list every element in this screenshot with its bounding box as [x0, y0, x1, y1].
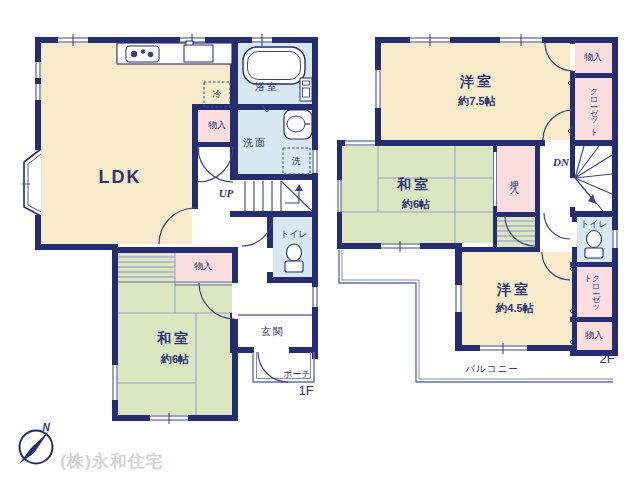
watermark: (株)永和住宅 [60, 453, 163, 470]
label-ldk: LDK [99, 168, 142, 186]
label-porch: ポーチ [283, 370, 310, 379]
bathtub-icon [243, 47, 305, 84]
room-washitsu-2f [342, 146, 493, 243]
label-storage-hall-1f: 物入 [208, 121, 226, 130]
room-fills [41, 43, 612, 415]
hall-2f-door-arc [544, 213, 570, 239]
floorplan-drawing [0, 0, 640, 480]
stove-icon [126, 46, 159, 62]
toilet-icon-2f [585, 231, 603, 259]
label-western-4-5-size: 約4.5帖 [496, 303, 533, 314]
label-toilet-2f: トイレ [580, 220, 608, 229]
toilet-icon-1f [285, 244, 303, 272]
bath-panel-icon [300, 78, 312, 101]
compass-icon [19, 431, 53, 465]
label-bath: 浴室 [255, 82, 279, 92]
room-western-4-5 [462, 252, 572, 345]
label-balcony: バルコニー [465, 364, 518, 374]
label-closet-top-2f: クローゼット [589, 82, 597, 134]
label-washitsu-2f-size: 約6帖 [402, 199, 430, 210]
label-western-7-5-size: 約7.5帖 [458, 96, 495, 107]
bay-window [22, 149, 41, 216]
label-floor-2f: 2F [599, 352, 614, 365]
label-stairs-dn: DN [553, 157, 569, 168]
label-oshiire: 押入 [510, 173, 519, 181]
label-fridge: 冷 [213, 90, 222, 99]
label-washitsu-1f-size: 約6帖 [161, 354, 189, 365]
label-entrance: 玄関 [261, 327, 285, 337]
room-western-7-5 [381, 43, 570, 140]
label-closet-right-2f: クローゼット [583, 269, 599, 313]
floorplan: LDK 和室 約6帖 浴室 洗面 物入 物入 冷 洗 トイレ 玄関 ポーチ UP… [0, 0, 640, 480]
label-washitsu-2f: 和室 [397, 177, 431, 191]
stairs-down-2f [575, 146, 612, 211]
label-western-4-5: 洋室 [497, 282, 531, 296]
label-floor-1f: 1F [298, 384, 313, 397]
label-toilet-1f: トイレ [280, 230, 308, 239]
kitchen-counter [117, 41, 232, 64]
label-compass-n: N [42, 423, 49, 433]
label-stairs-up: UP [219, 188, 234, 199]
label-storage-bottom-2f: 物入 [585, 331, 603, 340]
oshiire-sliding-door [494, 152, 497, 206]
label-laundry: 洗 [292, 157, 301, 166]
label-washitsu-1f: 和室 [157, 331, 191, 345]
label-western-7-5: 洋室 [460, 74, 494, 88]
label-storage-top-2f: 物入 [584, 53, 602, 62]
label-washroom: 洗面 [243, 138, 267, 148]
washbasin-icon [284, 110, 312, 139]
label-storage-washitsu-1f: 物入 [194, 262, 212, 271]
stairs-up-1f [245, 181, 312, 211]
